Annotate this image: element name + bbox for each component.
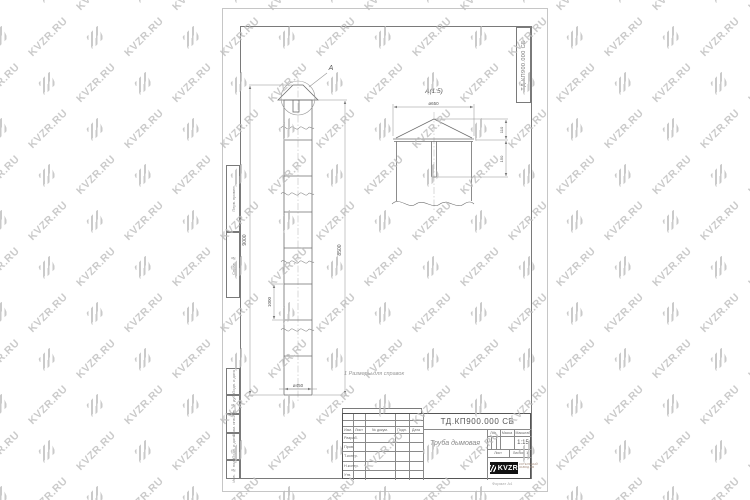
titleblock-header-col: № докум. <box>365 426 395 433</box>
titleblock-header-col: Лист <box>353 426 365 433</box>
scale-label: Масштаб <box>514 429 532 436</box>
margin-box: Инв. № подл. <box>226 460 240 479</box>
dimension-lines <box>249 85 508 395</box>
kvzr-caption-line2: ЗАВОД.РФ <box>519 466 532 469</box>
titleblock-code: ТД.КП900.000 СБ <box>423 414 532 429</box>
margin-box: Взам. инв. № <box>226 414 240 433</box>
margin-box-label: Подп. и дата <box>231 370 236 394</box>
margin-box-label: Перв. примен. <box>231 185 236 212</box>
sheets-label: Листов <box>513 451 524 455</box>
sheets-cell: Листов 1 <box>509 449 532 457</box>
scale-value: 1:15 <box>514 436 532 449</box>
detail-view-title: А(1:5) <box>424 88 443 95</box>
detail-dim-top: 110 <box>499 126 504 133</box>
margin-box: Перв. примен. <box>226 165 240 232</box>
lit-label: Лит. <box>487 429 500 436</box>
titleblock-header-col: Изм. <box>343 426 353 433</box>
dim-body-height: 8500 <box>337 244 343 255</box>
mass-label: Масса <box>500 429 514 436</box>
detail-diameter: ø650 <box>428 101 439 106</box>
format-label: Формат А4 <box>492 481 512 486</box>
sheet-label: Лист <box>487 449 509 457</box>
titleblock-header-col: Дата <box>409 426 423 433</box>
signature-row-label: Т.контр. <box>344 451 365 461</box>
dim-total-height: 9000 <box>242 234 248 245</box>
signature-row-label: Утв. <box>344 470 365 480</box>
titleblock-part-name: Труба дымовая <box>423 429 487 457</box>
margin-box-label: Справ. № <box>231 256 236 275</box>
sheets-value: 1 <box>526 451 528 455</box>
title-block: ТД.КП900.000 СБ Труба дымовая Лит. Масса… <box>342 413 531 479</box>
detail-dim-bottom: 150 <box>499 155 504 162</box>
margin-box: Подп. и дата <box>226 433 240 460</box>
kvzr-logo-text: KVZR <box>498 465 518 472</box>
signature-row-label: Разраб. <box>344 433 365 442</box>
kvzr-logo: KVZR <box>490 462 518 474</box>
kvzr-logo-caption: КОТЕЛЬНЫЙ ЗАВОД.РФ <box>519 463 532 470</box>
signature-row-label: Н.контр. <box>344 461 365 470</box>
signature-row-label: Пров. <box>344 442 365 451</box>
margin-box: Подп. и дата <box>226 368 240 395</box>
dim-segment: 1000 <box>267 296 272 307</box>
kvzr-stripes-icon <box>490 465 496 472</box>
chimney-front-view <box>278 73 327 402</box>
margin-box-label: Подп. и дата <box>231 435 236 459</box>
titleblock-header-col: Подп. <box>395 426 409 433</box>
margin-box-label: Инв. № подл. <box>231 457 236 483</box>
detail-callout-label: А <box>328 65 334 72</box>
reference-note: 1 Размеры для справок <box>344 371 404 377</box>
margin-box: Справ. № <box>226 232 240 298</box>
cap-detail-view <box>392 112 474 212</box>
dim-diameter: ø450 <box>293 383 304 388</box>
drawing-page: ТД.КП900.000 СБ Перв. примен.Справ. № По… <box>0 0 750 500</box>
